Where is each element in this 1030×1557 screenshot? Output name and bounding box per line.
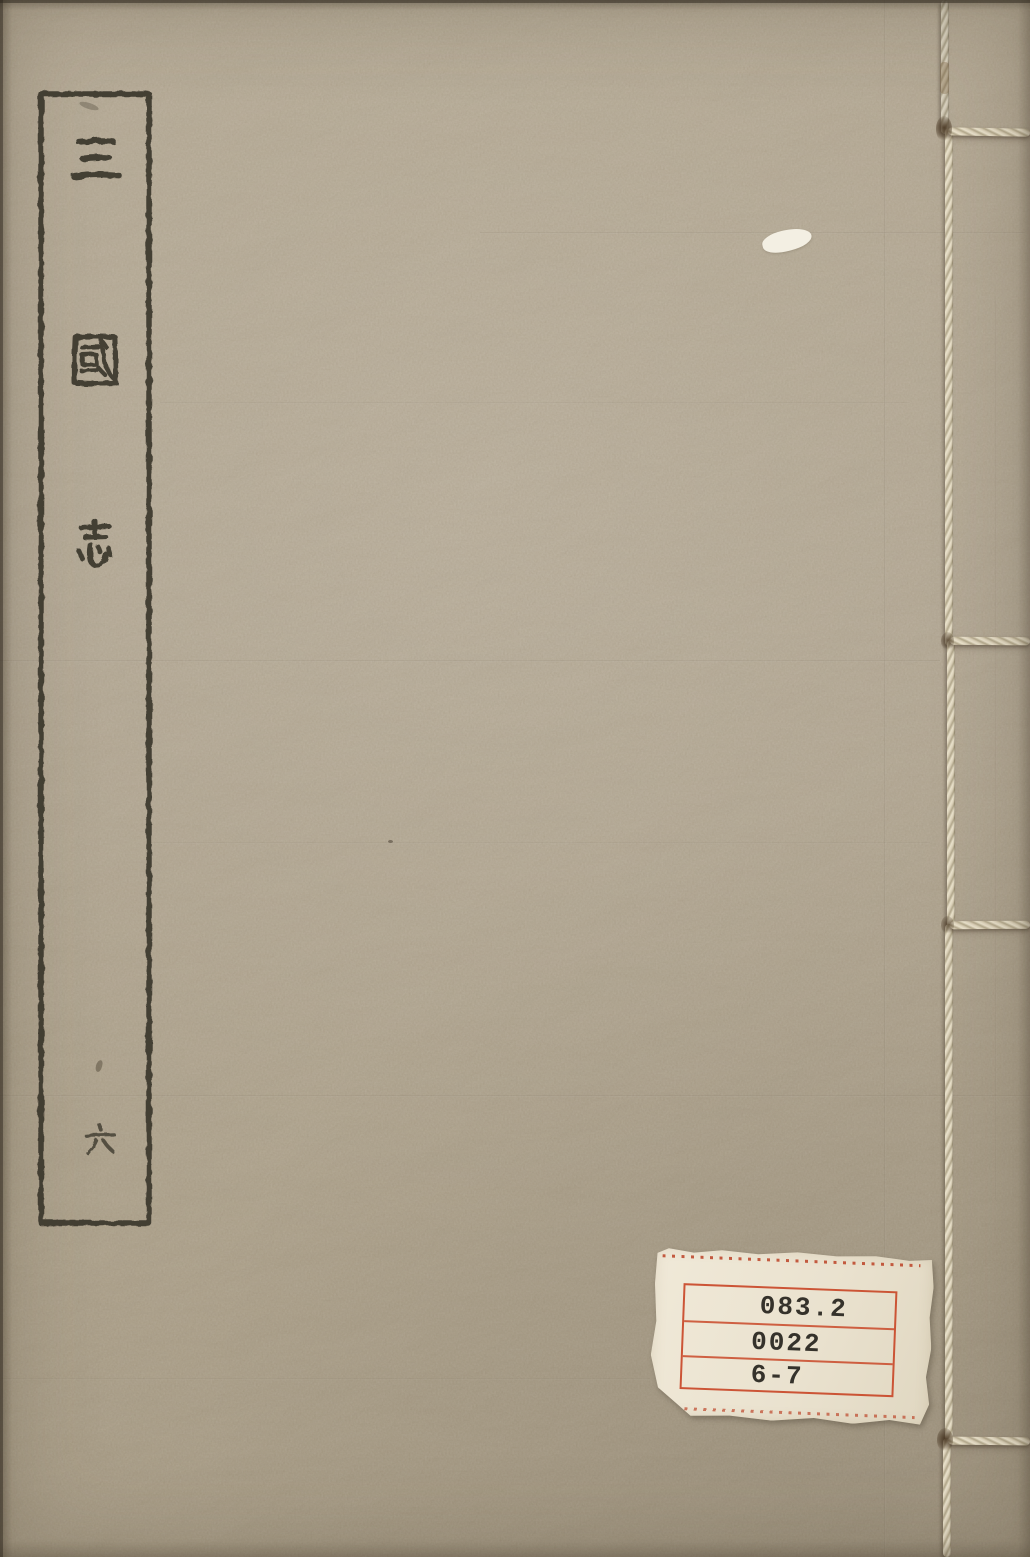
binding-thread-horizontal xyxy=(948,127,1030,136)
stitch-knot xyxy=(937,1428,953,1452)
photo-edge-top xyxy=(0,0,1030,3)
book-cover-photo: 083.2 0022 6-7 三 國 志 六 xyxy=(0,0,1030,1557)
binding-thread-horizontal xyxy=(950,921,1030,930)
binding-thread-vertical xyxy=(943,1438,951,1557)
paper-speck xyxy=(388,840,393,843)
stitch-knot xyxy=(941,632,954,650)
binding-thread-vertical xyxy=(945,128,953,646)
thread-stain xyxy=(940,62,949,94)
photo-edge-left xyxy=(0,0,3,1557)
binding-thread-vertical xyxy=(947,640,955,930)
call-number-label: 083.2 0022 6-7 xyxy=(655,1246,935,1416)
stitch-knot xyxy=(941,916,954,934)
binding-thread-horizontal xyxy=(948,1437,1030,1446)
call-number-box: 083.2 0022 6-7 xyxy=(680,1283,898,1397)
binding-thread-vertical xyxy=(945,924,953,1444)
binding-thread-horizontal xyxy=(950,637,1030,646)
stitch-knot xyxy=(936,116,952,142)
